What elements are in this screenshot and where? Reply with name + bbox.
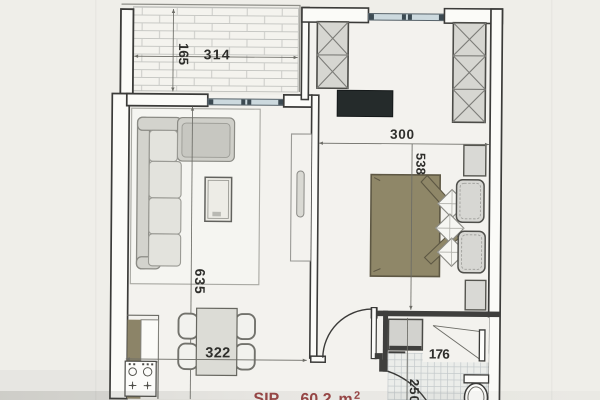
svg-text:314: 314 <box>204 46 230 62</box>
svg-text:538: 538 <box>413 153 428 175</box>
svg-text:635: 635 <box>192 269 208 294</box>
svg-text:300: 300 <box>390 127 414 142</box>
svg-text:322: 322 <box>205 345 230 361</box>
svg-text:165: 165 <box>176 43 191 66</box>
svg-text:176: 176 <box>429 347 451 362</box>
